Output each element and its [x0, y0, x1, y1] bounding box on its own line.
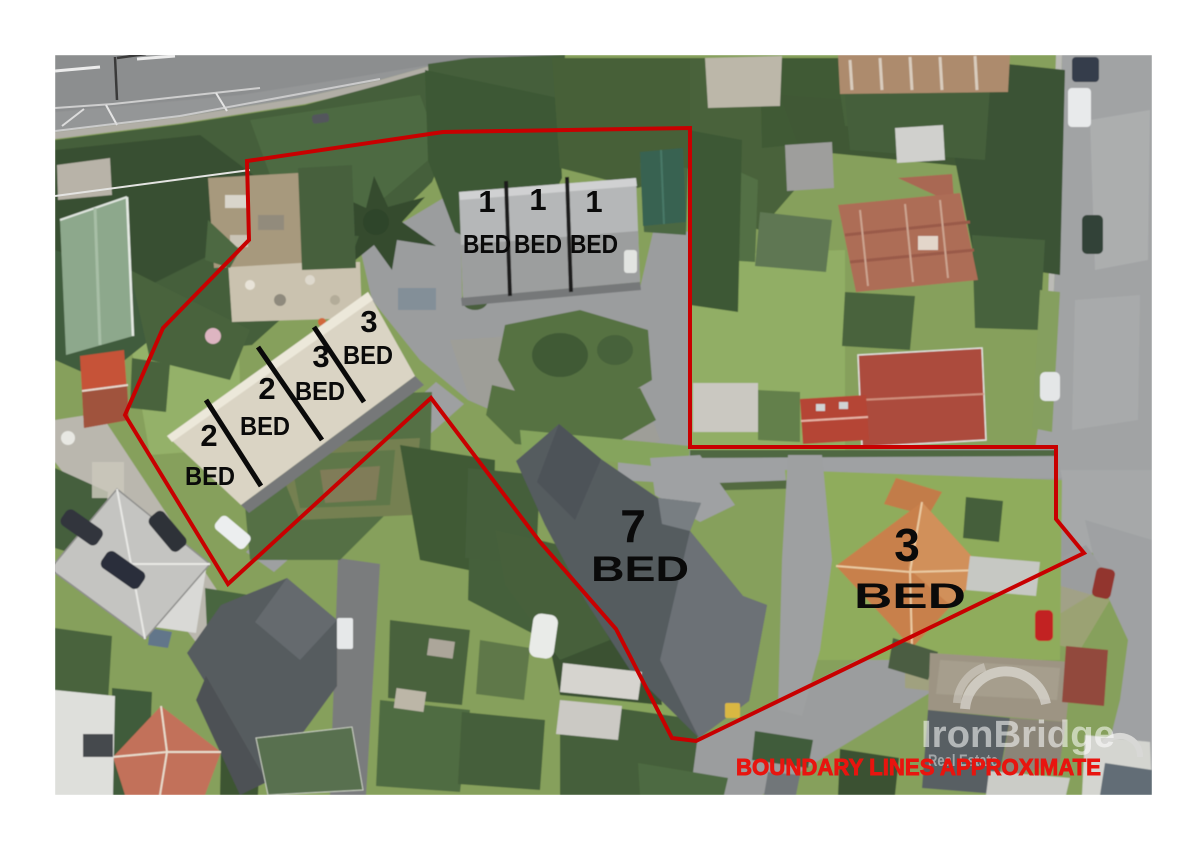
- svg-text:1: 1: [478, 184, 495, 219]
- svg-text:BED: BED: [570, 229, 618, 259]
- svg-text:BOUNDARY LINES APPROXIMATE: BOUNDARY LINES APPROXIMATE: [736, 754, 1101, 780]
- svg-text:BED: BED: [854, 577, 966, 616]
- svg-text:BED: BED: [343, 340, 393, 370]
- svg-text:2: 2: [200, 418, 217, 453]
- svg-text:3: 3: [894, 519, 920, 571]
- svg-text:7: 7: [620, 500, 646, 552]
- svg-text:BED: BED: [514, 229, 562, 259]
- svg-text:1: 1: [585, 184, 602, 219]
- svg-text:2: 2: [258, 371, 275, 406]
- svg-text:3: 3: [312, 339, 329, 374]
- svg-text:BED: BED: [295, 376, 345, 406]
- svg-text:BED: BED: [185, 461, 235, 491]
- svg-text:BED: BED: [463, 229, 511, 259]
- svg-text:BED: BED: [591, 550, 689, 589]
- svg-text:1: 1: [529, 182, 546, 217]
- svg-text:IronBridge: IronBridge: [921, 714, 1115, 756]
- svg-text:3: 3: [360, 304, 377, 339]
- svg-text:BED: BED: [240, 411, 290, 441]
